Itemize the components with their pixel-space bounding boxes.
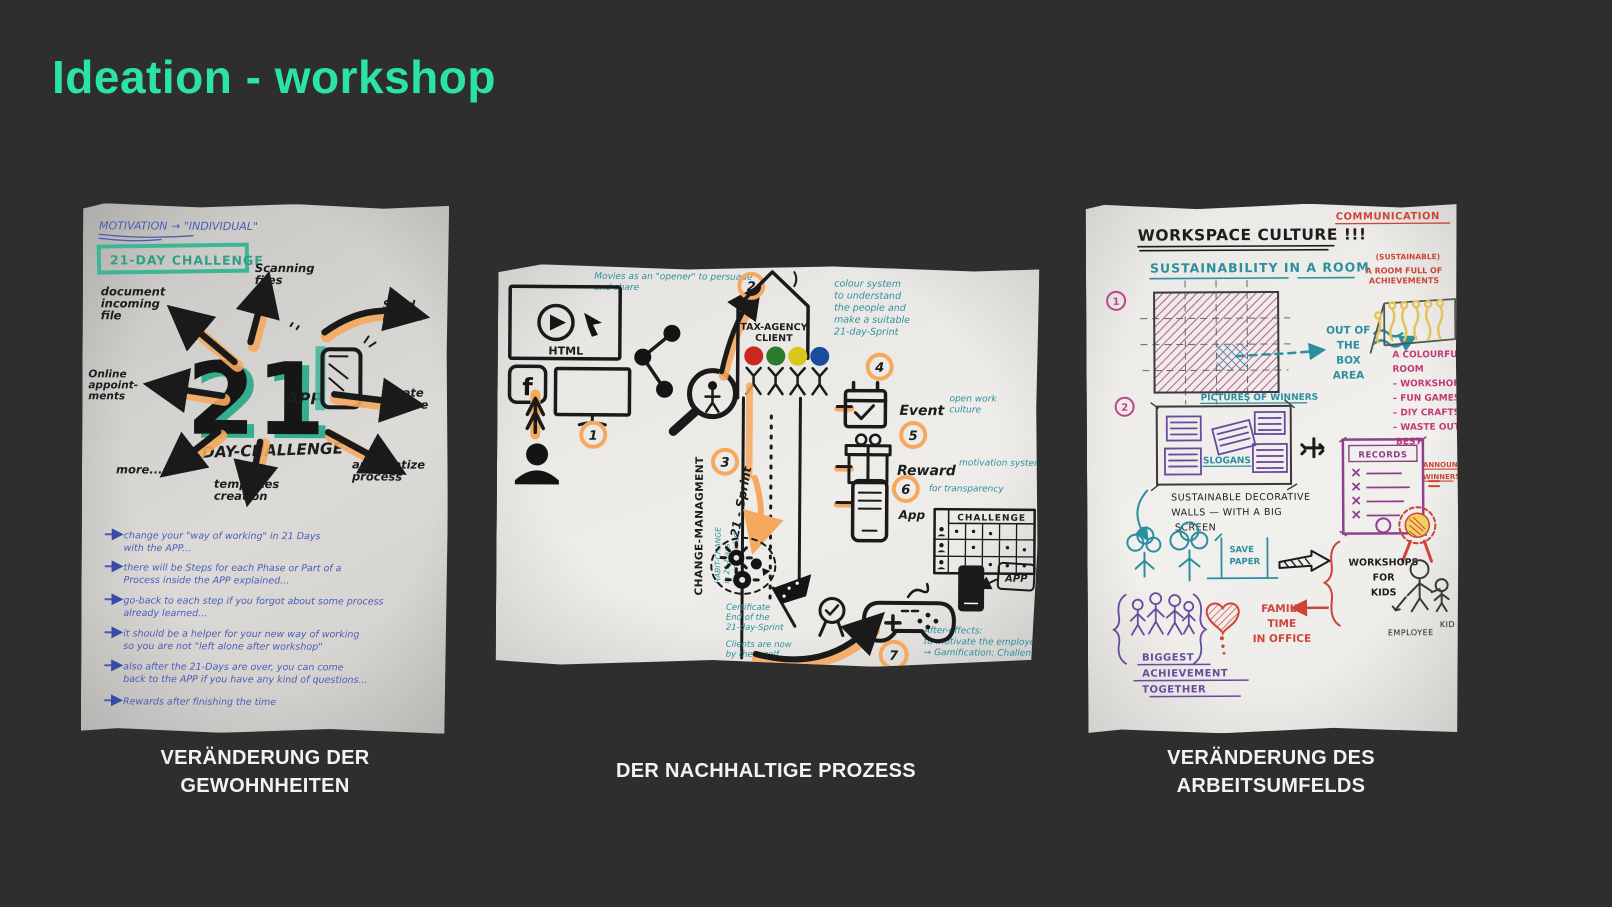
spoke-label-more: more... xyxy=(116,462,163,476)
calendar-icon xyxy=(845,383,885,427)
spoke-label-automatize: automatizeprocess xyxy=(351,457,425,483)
app-note: for transparency xyxy=(929,484,1005,495)
plus-cross xyxy=(1302,439,1323,457)
save-paper-label: SAVEPAPER xyxy=(1229,545,1260,567)
reward-note: motivation system xyxy=(959,458,1039,469)
pictures-of-winners-label: PICTURES OF WINNERS xyxy=(1201,393,1319,404)
subtitle-underline xyxy=(1150,278,1354,279)
dark-phone-icon xyxy=(958,565,984,611)
habits-sketch: MOTIVATION → "INDIVIDUAL" 21-DAY CHALLEN… xyxy=(81,203,449,734)
number-badge-3: 3 xyxy=(713,450,737,474)
underline-squiggle xyxy=(99,234,193,241)
achievement-room xyxy=(1370,299,1456,353)
number-badge-1: 1 xyxy=(581,423,605,447)
workspace-title: WORKSPACE CULTURE !!! xyxy=(1138,226,1367,245)
number-badge-4: 4 xyxy=(868,355,892,379)
equals-sign xyxy=(1429,481,1439,486)
dot-red xyxy=(744,346,763,365)
event-note: open workculture xyxy=(949,394,997,415)
app-note-box: APP xyxy=(984,563,1035,591)
sketch-photo-workspace: WORKSPACE CULTURE !!! COMMUNICATION SUST… xyxy=(1086,203,1460,734)
gift-icon xyxy=(846,435,890,483)
svg-text:6: 6 xyxy=(901,483,910,498)
svg-text:2: 2 xyxy=(1121,403,1128,414)
sketch-photo-process: Movies as an "opener" to persuadeand sha… xyxy=(496,264,1040,668)
dot-yellow xyxy=(788,347,807,366)
movies-note: Movies as an "opener" to persuadeand sha… xyxy=(594,272,753,294)
workspace-sketch: WORKSPACE CULTURE !!! COMMUNICATION SUST… xyxy=(1086,203,1460,734)
number-badge-2: 2 xyxy=(1116,398,1134,416)
family-time-label: FAMILYTIMEIN OFFICE xyxy=(1253,603,1312,645)
paper-sheet: Movies as an "opener" to persuadeand sha… xyxy=(496,264,1040,668)
bullet-notes: change your "way of working" in 21 Daysw… xyxy=(105,530,384,708)
svg-text:3: 3 xyxy=(720,456,729,471)
spoke-label-email: SendE-mail xyxy=(383,298,424,324)
dot-blue xyxy=(810,347,829,366)
video-player-icon: HTML xyxy=(510,286,620,359)
colour-dot-people xyxy=(744,346,829,394)
app-label: App xyxy=(898,508,926,522)
workshops-kids-label: WORKSHOPSFORKIDS xyxy=(1349,557,1419,598)
dot-green xyxy=(766,346,785,365)
out-of-box-label: OUT OFTHEBOXAREA xyxy=(1326,324,1371,381)
sustainable-paren: (SUSTAINABLE) xyxy=(1376,252,1441,261)
motivation-note: MOTIVATION → "INDIVIDUAL" xyxy=(99,219,258,233)
caption-gewohnheiten: VERÄNDERUNG DER GEWOHNHEITEN xyxy=(100,744,430,800)
svg-text:5: 5 xyxy=(909,429,918,444)
employee-kid-figures: EMPLOYEE KID xyxy=(1387,560,1455,637)
change-management-label: CHANGE-MANAGMENT xyxy=(693,456,706,596)
heart-icon xyxy=(1207,603,1239,654)
spoke-label-scanning: Scanningfiles xyxy=(255,261,315,287)
paper-sheet: MOTIVATION → "INDIVIDUAL" 21-DAY CHALLEN… xyxy=(81,203,449,734)
employee-label: EMPLOYEE xyxy=(1388,628,1434,637)
app-phone-icon xyxy=(852,481,886,541)
colourful-room-list: A COLOURFULROOM– WORKSHOPS– FUN GAMES– D… xyxy=(1392,350,1459,447)
slogans-wall-box: SLOGANS xyxy=(1151,400,1297,491)
sketch-photo-habits: MOTIVATION → "INDIVIDUAL" 21-DAY CHALLEN… xyxy=(81,203,449,734)
paper-sheet: WORKSPACE CULTURE !!! COMMUNICATION SUST… xyxy=(1086,203,1460,734)
monitor-icon xyxy=(555,369,629,426)
sprint-label: 21 - Sprint xyxy=(728,464,755,538)
number-badge-5: 5 xyxy=(901,423,925,447)
process-sketch: Movies as an "opener" to persuadeand sha… xyxy=(496,264,1040,668)
svg-text:7: 7 xyxy=(889,649,899,664)
spoke-label-online: Onlineappoint-ments xyxy=(88,368,138,402)
arrow-to-gears xyxy=(755,478,762,532)
slide: Ideation - workshop MOTIV xyxy=(0,0,1612,907)
slogans-label: SLOGANS xyxy=(1203,456,1251,466)
html-label: HTML xyxy=(548,344,583,357)
communication-label: COMMUNICATION xyxy=(1336,211,1440,223)
svg-text:1: 1 xyxy=(1113,297,1120,308)
number-badge-1: 1 xyxy=(1107,292,1125,310)
flag-icon xyxy=(773,574,811,626)
bullet-item: it should be a helper for your new way o… xyxy=(123,628,359,653)
spoke-label-templates: templatescreation xyxy=(214,477,280,503)
announce-winners-label: ANNOUNCEWINNERS xyxy=(1423,461,1459,481)
sustainability-subtitle: SUSTAINABILITY IN A ROOM xyxy=(1150,259,1370,275)
slide-title: Ideation - workshop xyxy=(52,50,496,104)
colour-system-note: colour systemto understandthe people and… xyxy=(834,278,911,338)
save-paper-note: SAVEPAPER xyxy=(1207,534,1277,578)
room-full-label: A ROOM FULL OFACHIEVEMENTS xyxy=(1366,266,1443,285)
number-badge-6: 6 xyxy=(894,477,918,501)
event-label: Event xyxy=(899,403,945,419)
records-label: RECORDS xyxy=(1358,450,1407,460)
striped-arrow-icon xyxy=(1279,551,1329,571)
bullet-item: also after the 21-Days are over, you can… xyxy=(123,661,368,686)
caption-prozess: DER NACHHALTIGE PROZESS xyxy=(566,757,966,785)
bullet-item: go-back to each step if you forgot about… xyxy=(123,595,383,620)
share-icon xyxy=(634,325,681,398)
house-label: TAX-AGENCYCLIENT xyxy=(740,322,807,344)
caption-arbeitsumfeld: VERÄNDERUNG DES ARBEITSUMFELDS xyxy=(1106,744,1436,800)
red-brace xyxy=(1324,542,1339,626)
medal-icon xyxy=(820,598,844,635)
bullet-item: Rewards after finishing the time xyxy=(123,696,276,708)
communication-underline xyxy=(1336,223,1450,224)
bullet-item: change your "way of working" in 21 Daysw… xyxy=(124,530,321,554)
title-underline xyxy=(1138,246,1334,251)
spoke-label-document: documentincomingfile xyxy=(101,284,166,322)
certificate-note: CertificateEnd of the21-day-Sprint xyxy=(726,603,785,633)
kid-label: KID xyxy=(1440,620,1455,629)
challenge-box-label: 21-DAY CHALLENGE xyxy=(110,252,264,268)
svg-text:APP: APP xyxy=(1004,574,1028,585)
number-badge-7: 7 xyxy=(881,642,907,668)
upload-person-icon xyxy=(515,394,560,484)
challenge-box: 21-DAY CHALLENGE xyxy=(99,244,264,273)
biggest-achievement-label: BIGGESTACHIEVEMENTTOGETHER xyxy=(1142,652,1228,695)
challenge-header: CHALLENGE xyxy=(957,513,1026,523)
svg-text:4: 4 xyxy=(874,361,884,376)
bullet-item: there will be Steps for each Phase or Pa… xyxy=(123,562,341,586)
svg-text:1: 1 xyxy=(589,429,598,444)
sustainable-walls-label: SUSTAINABLE DECORATIVEWALLS — WITH A BIG… xyxy=(1171,492,1311,534)
spoke-label-invoice: createinvoice xyxy=(382,386,428,412)
hatched-grid-square xyxy=(1140,280,1291,405)
